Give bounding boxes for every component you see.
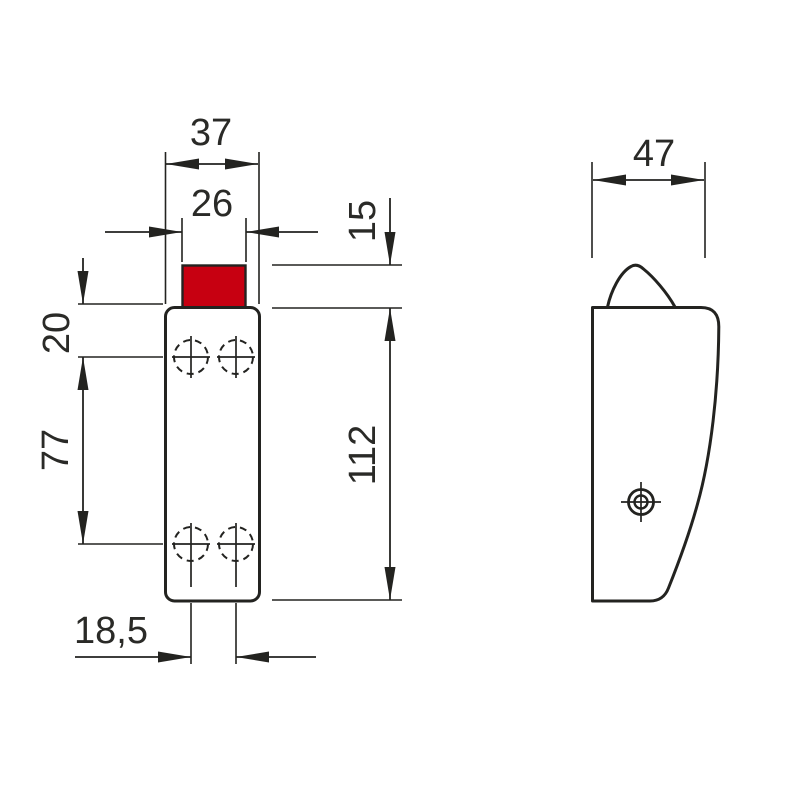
arrowhead-left [166, 159, 199, 170]
dim-label-20: 20 [36, 312, 78, 354]
technical-drawing: 37 26 15 112 20 77 [0, 0, 800, 800]
arrowhead-right [158, 652, 191, 663]
dimension-26: 26 [105, 183, 318, 262]
red-actuator-block [183, 266, 246, 309]
arrowhead-left [593, 175, 626, 186]
arrowhead-left [236, 652, 269, 663]
arrowhead-down [385, 232, 396, 265]
dimension-112: 112 [272, 308, 402, 600]
dim-label-18-5: 18,5 [74, 610, 148, 652]
arrowhead-down [78, 511, 89, 544]
dim-label-47: 47 [633, 133, 675, 175]
dimension-15: 15 [272, 198, 402, 308]
dim-label-112: 112 [342, 425, 384, 486]
dimension-47: 47 [592, 133, 705, 258]
front-view [166, 266, 260, 602]
drawing-canvas: 37 26 15 112 20 77 [0, 0, 800, 800]
side-view [593, 265, 719, 601]
arrowhead-right [225, 159, 258, 170]
dimension-77: 77 [35, 357, 163, 544]
arrowhead-left [246, 227, 279, 238]
arrowhead-up [78, 357, 89, 390]
dimension-18-5: 18,5 [74, 603, 316, 664]
dim-label-26: 26 [191, 183, 233, 225]
dim-label-37: 37 [190, 112, 232, 154]
side-nose-bump [608, 265, 676, 307]
arrowhead-right [671, 175, 704, 186]
arrowhead-up [385, 308, 396, 341]
arrowhead-down [385, 567, 396, 600]
dim-label-15: 15 [342, 200, 384, 242]
arrowhead-down [78, 271, 89, 304]
side-body-outline [593, 308, 719, 602]
dimension-20: 20 [36, 258, 163, 357]
dim-label-77: 77 [35, 429, 77, 471]
